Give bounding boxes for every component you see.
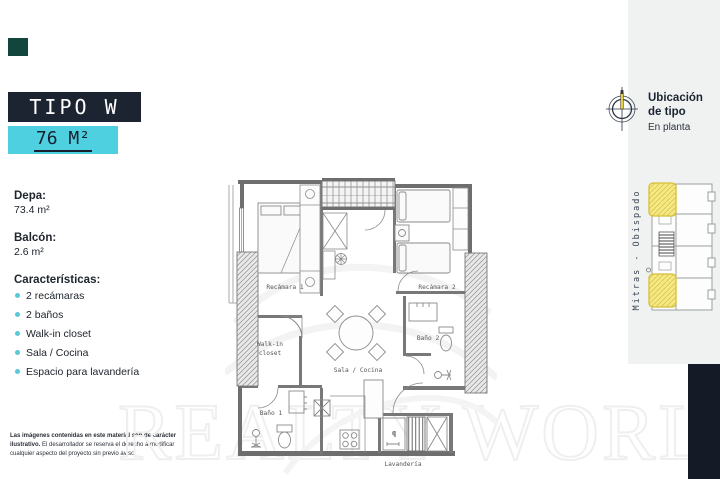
balcon-value: 2.6 m² [14,246,184,258]
sofa [364,380,383,418]
floor-plan: q Recámara 1 Recámara 2 Walk-in closet S… [225,163,497,475]
dining-table [327,306,386,361]
features-list: 2 recámaras 2 baños Walk-in closet Sala … [14,290,184,378]
depa-value: 73.4 m² [14,204,184,216]
type-badge: TIPO W [8,92,141,122]
lavanderia-closet: q [383,417,447,451]
label-recamara1: Recámara 1 [266,283,304,291]
label-bano2: Baño 2 [417,335,440,342]
recamara1-closet [300,185,320,293]
caracteristicas-label: Características: [14,274,184,286]
area-badge: 76 M² [8,126,118,154]
unit-info: Depa: 73.4 m² Balcón: 2.6 m² Característ… [14,190,184,385]
label-lavanderia: Lavandería [384,460,422,468]
depa-label: Depa: [14,190,184,202]
feature-item: Espacio para lavandería [14,366,184,378]
brand-mark [8,38,28,56]
label-bano1: Baño 1 [260,410,283,417]
label-walkin-1: Walk-in [257,341,283,348]
compass-icon [604,85,640,133]
area-badge-label: 76 M² [34,128,92,152]
location-title-block: Ubicación de tipo En planta [648,91,703,133]
label-walkin-2: closet [259,350,282,357]
label-sala-cocina: Sala / Cocina [334,367,383,374]
svg-text:q: q [392,430,396,437]
recamara2-beds [395,190,450,273]
type-badge-label: TIPO W [29,95,119,119]
legal-disclaimer: Las imágenes contenidas en este material… [10,432,178,459]
zone-label: Mitras - Obispado [632,190,642,311]
recamara2-closet [453,188,468,250]
corridor [322,178,395,210]
location-subtitle: En planta [648,122,703,133]
corner-accent-block [688,364,720,479]
location-title-line2: de tipo [648,105,703,119]
stair-core [659,232,674,256]
location-title-line1: Ubicación [648,91,703,105]
building-minimap [646,182,718,312]
feature-item: 2 recámaras [14,290,184,302]
feature-item: Walk-in closet [14,328,184,340]
feature-item: 2 baños [14,309,184,321]
label-recamara2: Recámara 2 [418,283,456,291]
minimap-marker [647,268,651,272]
bano1-fixtures [251,391,307,448]
feature-item: Sala / Cocina [14,347,184,359]
balcon-label: Balcón: [14,232,184,244]
